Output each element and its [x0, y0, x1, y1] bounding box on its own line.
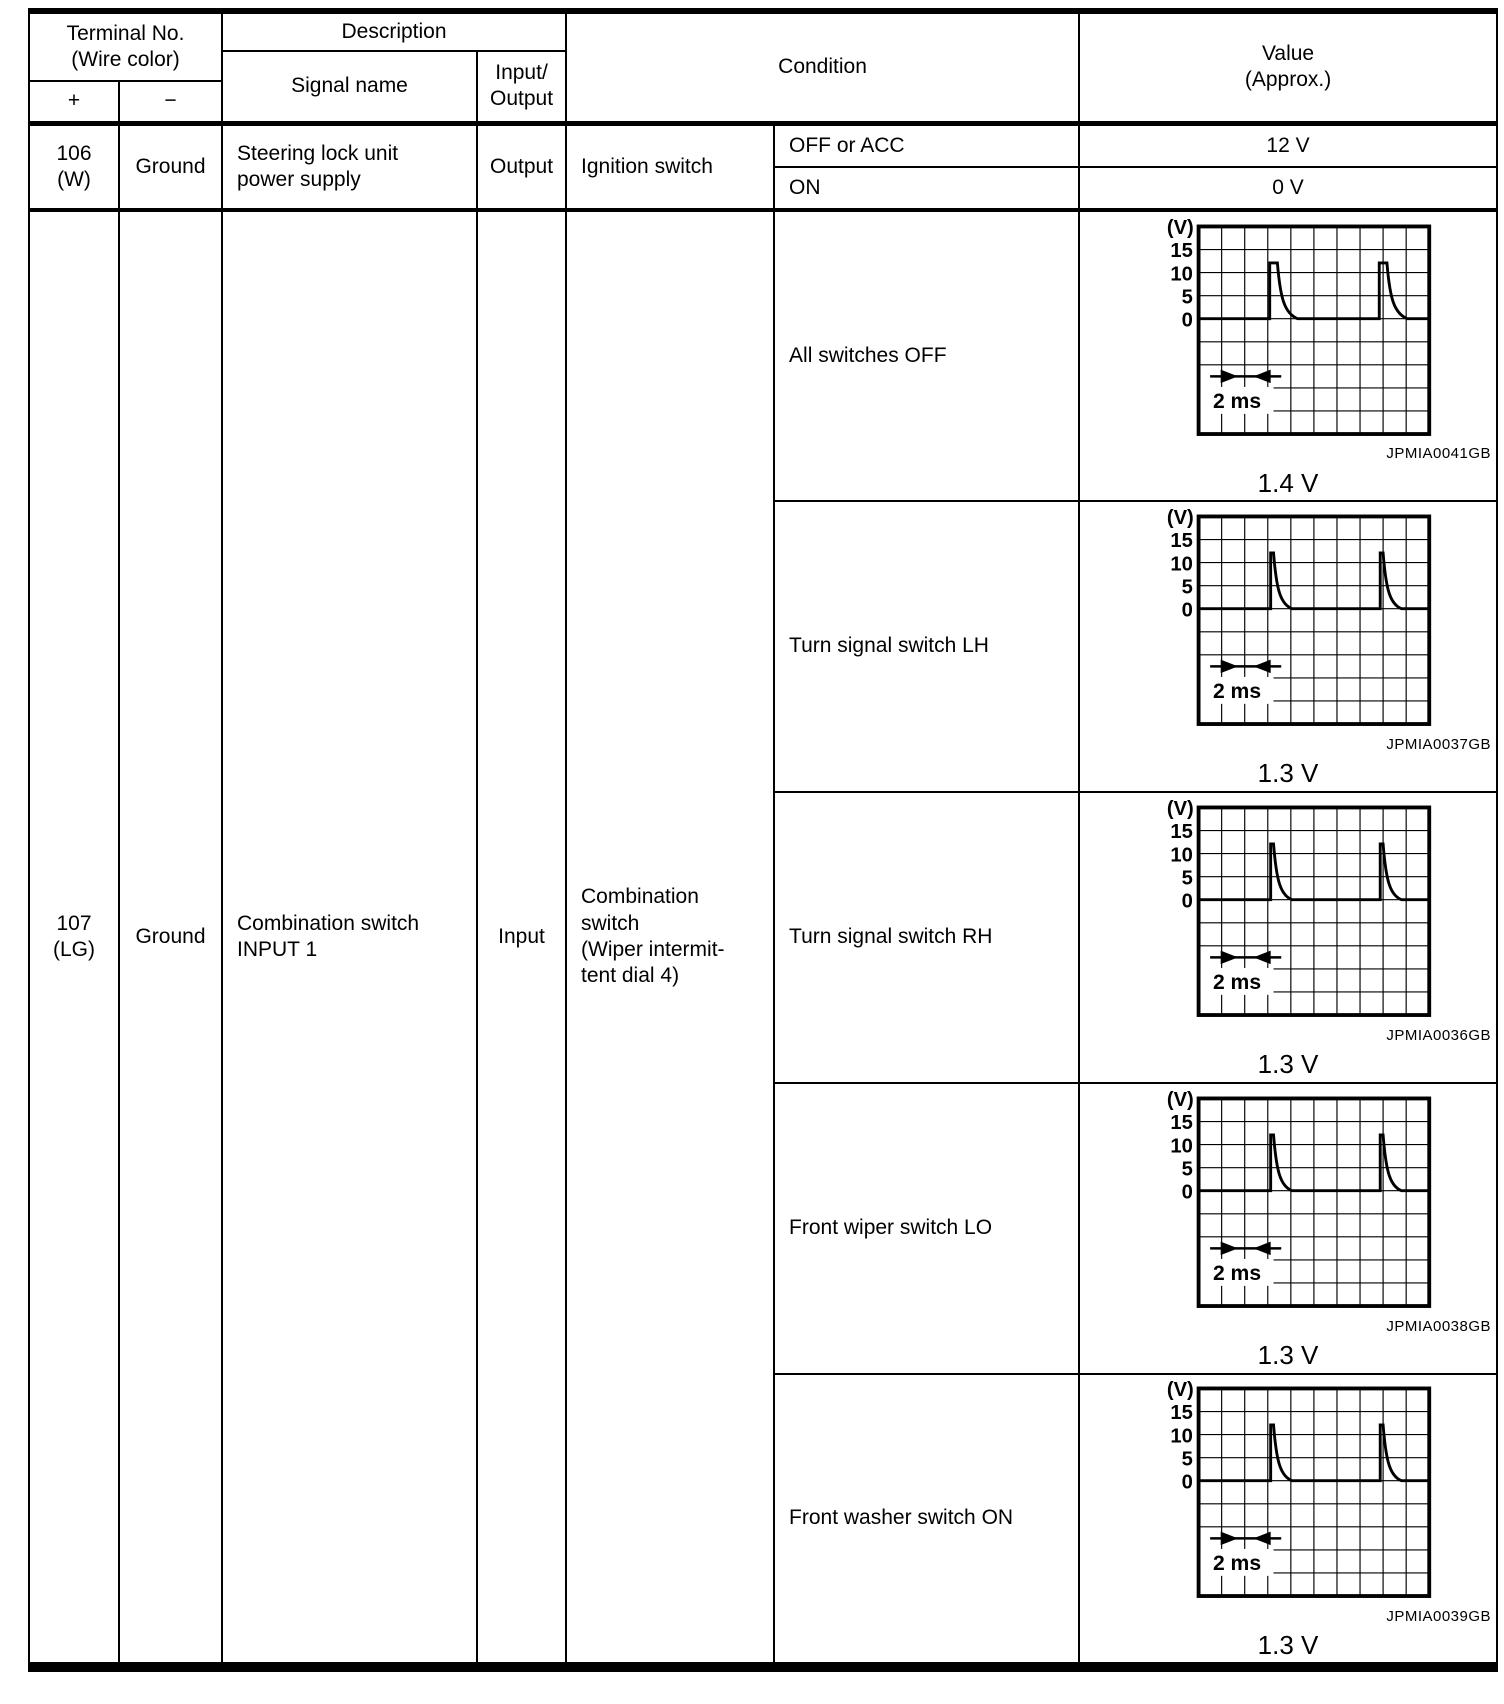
time-scale-marker: 2 ms — [1201, 1532, 1282, 1576]
scope-tick-15: 15 — [1170, 1112, 1192, 1134]
scope-y-unit-label: (V) — [1167, 507, 1194, 529]
header-signal-name: Signal name — [222, 51, 477, 123]
waveform-cell-4: (V) 15 10 5 0 2 ms JPMIA0039GB 1.3 V — [1079, 1374, 1497, 1667]
scope-tick-0: 0 — [1182, 890, 1193, 912]
measured-value: 1.3 V — [1133, 1339, 1443, 1372]
time-scale-marker: 2 ms — [1201, 951, 1282, 995]
time-scale-label: 2 ms — [1213, 680, 1261, 703]
condition-front-washer-on: Front washer switch ON — [774, 1374, 1079, 1667]
header-condition: Condition — [566, 11, 1079, 123]
scope-tick-0: 0 — [1182, 309, 1193, 331]
scope-tick-10: 10 — [1170, 844, 1192, 866]
figure-code: JPMIA0041GB — [1133, 445, 1491, 464]
cell-io-107: Input — [477, 210, 566, 1667]
scope-tick-0: 0 — [1182, 1471, 1193, 1493]
scope-y-unit-label: (V) — [1167, 1379, 1194, 1401]
oscilloscope-block: (V) 15 10 5 0 2 ms JPMIA0037GB 1.3 V — [1133, 503, 1443, 790]
cell-condition-group-106: Ignition switch — [566, 123, 774, 210]
scope-tick-15: 15 — [1170, 240, 1192, 262]
condition-off-or-acc: OFF or ACC — [774, 123, 1079, 167]
waveform-cell-0: (V) 15 10 5 0 2 ms JPMIA0041GB 1.4 V — [1079, 210, 1497, 501]
condition-all-switches-off: All switches OFF — [774, 210, 1079, 501]
condition-front-wiper-lo: Front wiper switch LO — [774, 1083, 1079, 1374]
figure-code: JPMIA0037GB — [1133, 736, 1491, 755]
scope-y-unit-label: (V) — [1167, 798, 1194, 820]
terminal-reference-table: Terminal No. (Wire color) Description Co… — [28, 8, 1498, 1672]
figure-code: JPMIA0039GB — [1133, 1608, 1491, 1627]
waveform-cell-2: (V) 15 10 5 0 2 ms JPMIA0036GB 1.3 V — [1079, 792, 1497, 1083]
header-plus: + — [29, 81, 119, 123]
time-scale-marker: 2 ms — [1201, 1242, 1282, 1286]
measured-value: 1.4 V — [1133, 467, 1443, 500]
figure-code: JPMIA0038GB — [1133, 1318, 1491, 1337]
oscilloscope-chart: (V) 15 10 5 0 2 ms — [1139, 1085, 1435, 1316]
condition-turn-signal-lh: Turn signal switch LH — [774, 501, 1079, 792]
scope-tick-10: 10 — [1170, 553, 1192, 575]
measured-value: 1.3 V — [1133, 1048, 1443, 1081]
oscilloscope-block: (V) 15 10 5 0 2 ms JPMIA0041GB 1.4 V — [1133, 213, 1443, 500]
figure-code: JPMIA0036GB — [1133, 1027, 1491, 1046]
oscilloscope-chart: (V) 15 10 5 0 2 ms — [1139, 1375, 1435, 1606]
scope-tick-5: 5 — [1182, 576, 1193, 598]
condition-turn-signal-rh: Turn signal switch RH — [774, 792, 1079, 1083]
cell-ground-106: Ground — [119, 123, 222, 210]
value-off-or-acc: 12 V — [1079, 123, 1497, 167]
scope-tick-5: 5 — [1182, 867, 1193, 889]
cell-terminal-106: 106 (W) — [29, 123, 119, 210]
oscilloscope-chart: (V) 15 10 5 0 2 ms — [1139, 503, 1435, 734]
scope-y-unit-label: (V) — [1167, 217, 1194, 239]
scope-tick-15: 15 — [1170, 1402, 1192, 1424]
cell-io-106: Output — [477, 123, 566, 210]
cell-signal-106: Steering lock unit power supply — [222, 123, 477, 210]
cell-terminal-107: 107 (LG) — [29, 210, 119, 1667]
header-description: Description — [222, 11, 566, 51]
scope-tick-5: 5 — [1182, 1448, 1193, 1470]
scope-tick-10: 10 — [1170, 1135, 1192, 1157]
time-scale-marker: 2 ms — [1201, 660, 1282, 704]
oscilloscope-chart: (V) 15 10 5 0 2 ms — [1139, 794, 1435, 1025]
oscilloscope-block: (V) 15 10 5 0 2 ms JPMIA0036GB 1.3 V — [1133, 794, 1443, 1081]
scope-tick-10: 10 — [1170, 263, 1192, 285]
header-minus: − — [119, 81, 222, 123]
value-on: 0 V — [1079, 167, 1497, 210]
cell-condition-group-107: Combination switch (Wiper intermit- tent… — [566, 210, 774, 1667]
scope-y-unit-label: (V) — [1167, 1089, 1194, 1111]
scope-tick-0: 0 — [1182, 599, 1193, 621]
time-scale-label: 2 ms — [1213, 1262, 1261, 1285]
time-scale-label: 2 ms — [1213, 971, 1261, 994]
measured-value: 1.3 V — [1133, 757, 1443, 790]
scope-tick-10: 10 — [1170, 1425, 1192, 1447]
cell-ground-107: Ground — [119, 210, 222, 1667]
measured-value: 1.3 V — [1133, 1629, 1443, 1662]
oscilloscope-block: (V) 15 10 5 0 2 ms JPMIA0038GB 1.3 V — [1133, 1085, 1443, 1372]
scope-tick-5: 5 — [1182, 286, 1193, 308]
waveform-cell-1: (V) 15 10 5 0 2 ms JPMIA0037GB 1.3 V — [1079, 501, 1497, 792]
scope-tick-15: 15 — [1170, 821, 1192, 843]
waveform-cell-3: (V) 15 10 5 0 2 ms JPMIA0038GB 1.3 V — [1079, 1083, 1497, 1374]
scope-tick-5: 5 — [1182, 1158, 1193, 1180]
scope-tick-0: 0 — [1182, 1181, 1193, 1203]
time-scale-label: 2 ms — [1213, 390, 1261, 413]
cell-signal-107: Combination switch INPUT 1 — [222, 210, 477, 1667]
scope-tick-15: 15 — [1170, 530, 1192, 552]
time-scale-marker: 2 ms — [1201, 369, 1282, 413]
condition-on: ON — [774, 167, 1079, 210]
header-terminal-no: Terminal No. (Wire color) — [29, 11, 222, 81]
oscilloscope-block: (V) 15 10 5 0 2 ms JPMIA0039GB 1.3 V — [1133, 1375, 1443, 1662]
header-input-output: Input/ Output — [477, 51, 566, 123]
oscilloscope-chart: (V) 15 10 5 0 2 ms — [1139, 213, 1435, 444]
header-value: Value (Approx.) — [1079, 11, 1497, 123]
time-scale-label: 2 ms — [1213, 1552, 1261, 1575]
